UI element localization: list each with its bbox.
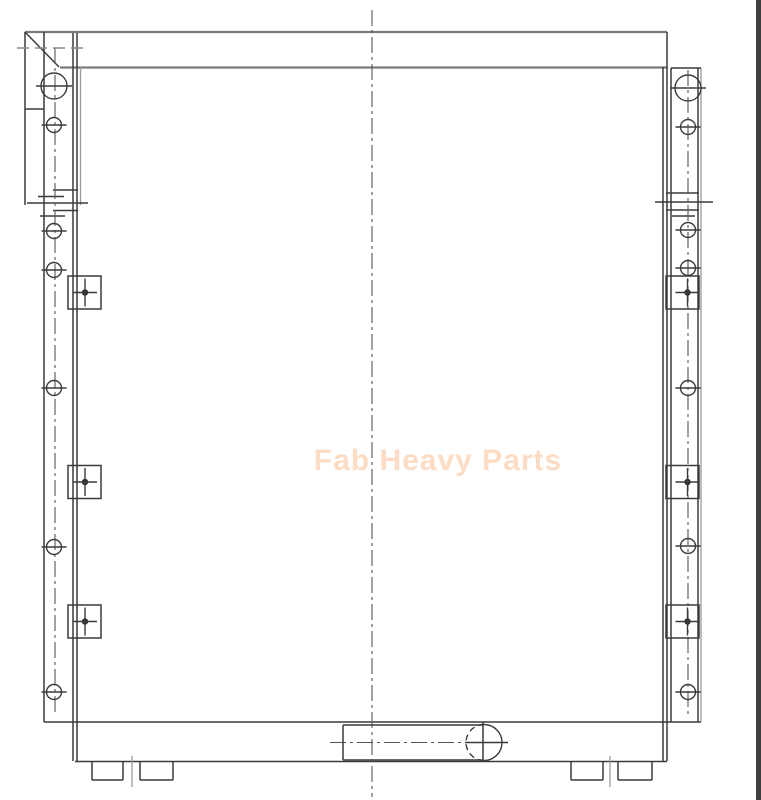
centerlines xyxy=(17,10,688,797)
structure-lines xyxy=(25,32,701,762)
technical-drawing-svg xyxy=(0,0,761,800)
watermark-text: Fab Heavy Parts xyxy=(314,444,562,478)
left-channel-bolt-holes xyxy=(36,73,72,700)
right-edge-bar xyxy=(756,0,761,800)
drain-plug xyxy=(343,722,508,761)
splice-marks xyxy=(27,190,713,216)
drawing-canvas: Fab Heavy Parts xyxy=(0,0,761,800)
